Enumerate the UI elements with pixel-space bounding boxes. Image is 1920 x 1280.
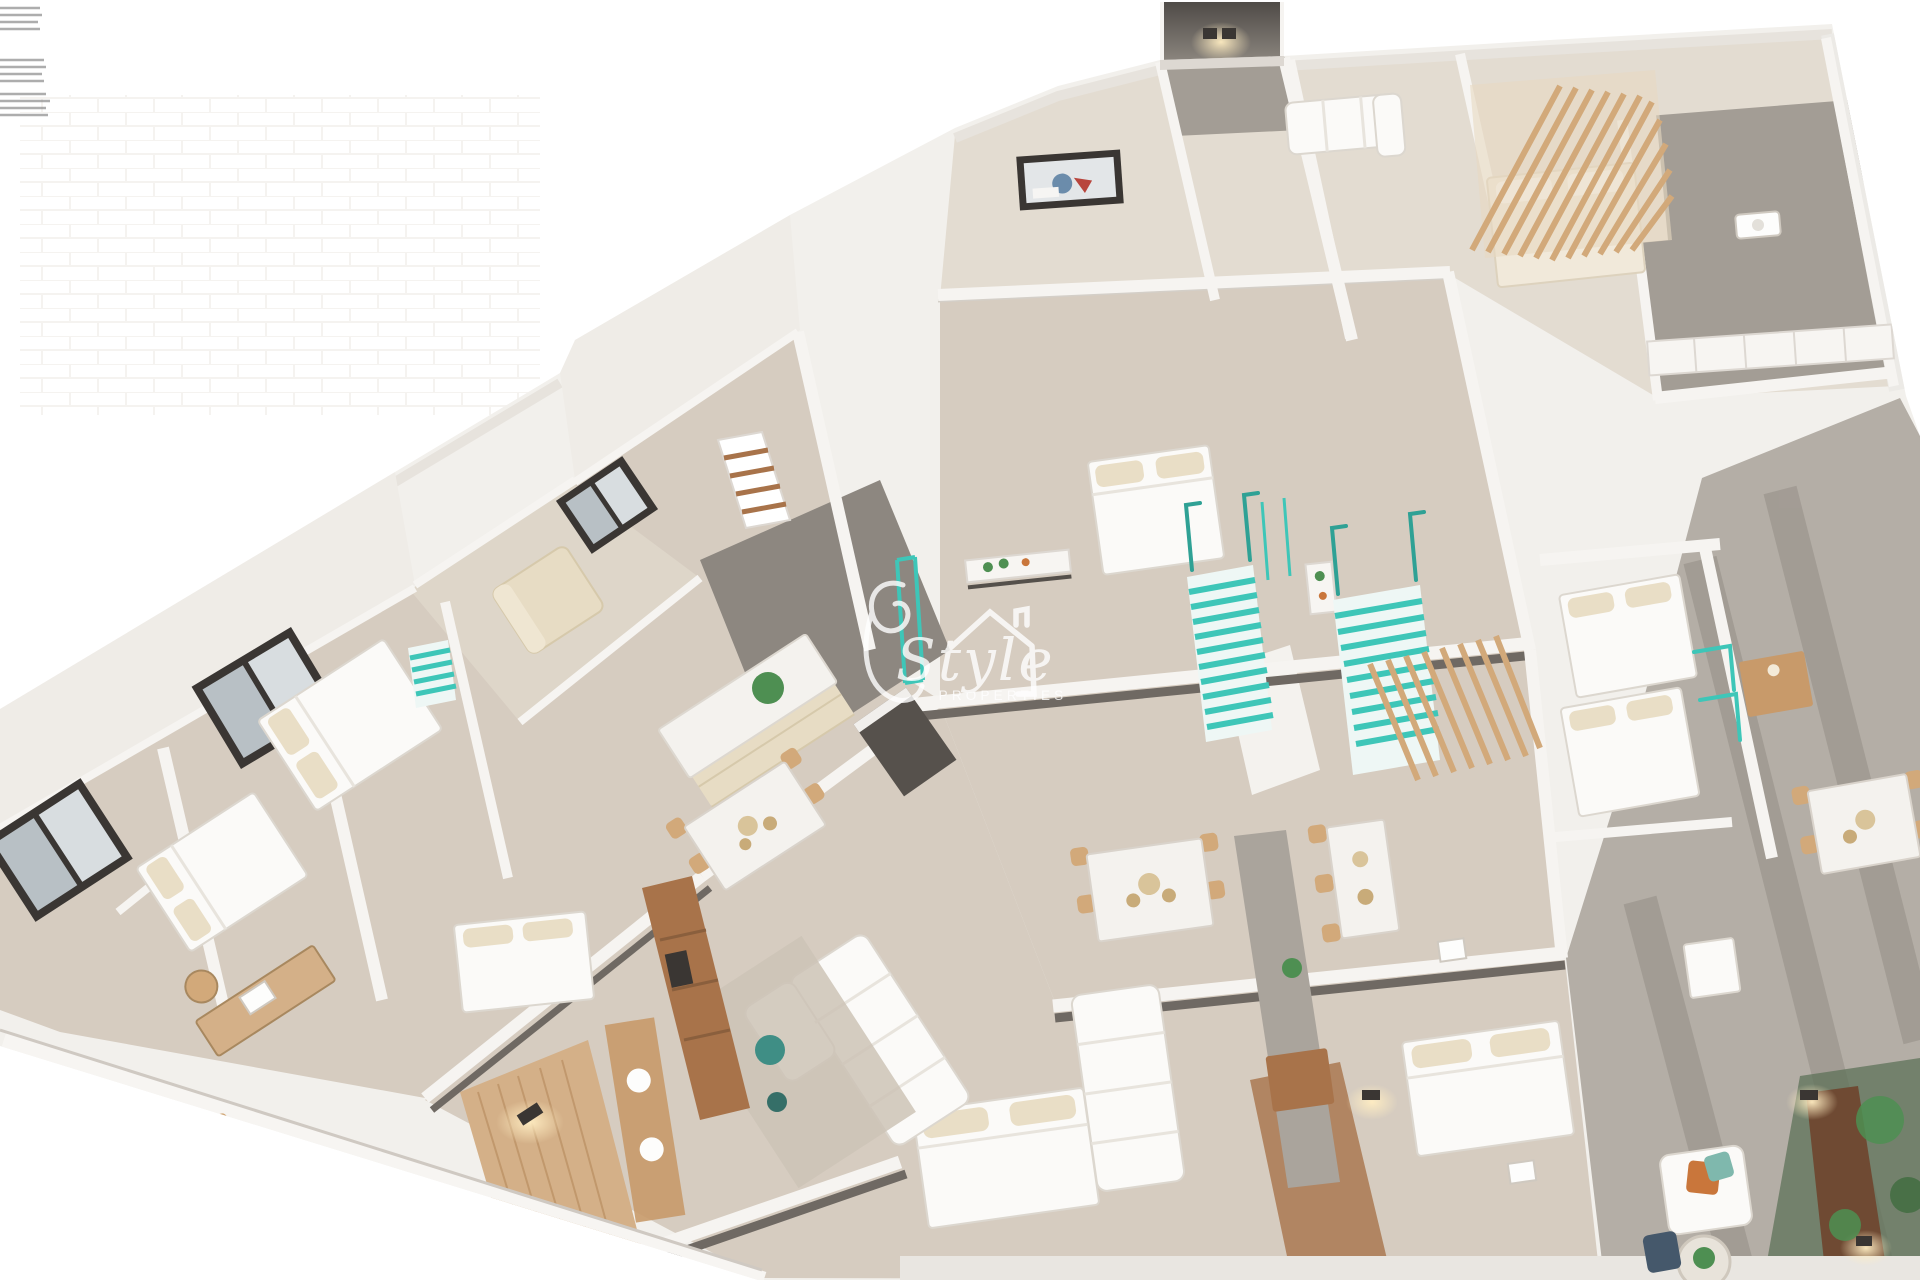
stairwell: [1160, 2, 1284, 62]
nightstand: [1438, 938, 1467, 961]
dresser: [1683, 938, 1740, 998]
ottoman: [1642, 1230, 1682, 1273]
teal-staircase-small: [408, 640, 456, 708]
media-cabinet: [1265, 1048, 1334, 1112]
watermark-subtext: PROPERTIES: [939, 688, 1068, 703]
faint-brick-wall: [20, 95, 540, 415]
bed: [1559, 574, 1697, 698]
bed: [1402, 1021, 1574, 1157]
floorplan-render: Style PROPERTIES: [0, 0, 1920, 1280]
bed: [1560, 687, 1699, 817]
decor-shelf: [1305, 562, 1336, 614]
wood-pergola: [1470, 70, 1672, 260]
nightstand: [1739, 651, 1814, 718]
watermark-script-text: Style: [896, 626, 1055, 694]
sink: [1735, 211, 1781, 239]
floorplan-canvas: Style PROPERTIES: [0, 0, 1920, 1280]
plant-icon: [752, 672, 784, 704]
plant-icon: [1282, 958, 1302, 978]
framed-art-window: [1016, 149, 1124, 210]
teal-coffee-table: [767, 1092, 787, 1112]
nightstand: [1508, 1160, 1537, 1183]
bed: [1088, 445, 1225, 575]
teal-coffee-table: [755, 1035, 785, 1065]
plant-icon: [1693, 1247, 1715, 1269]
bed: [454, 911, 594, 1012]
armchair: [1659, 1145, 1753, 1236]
